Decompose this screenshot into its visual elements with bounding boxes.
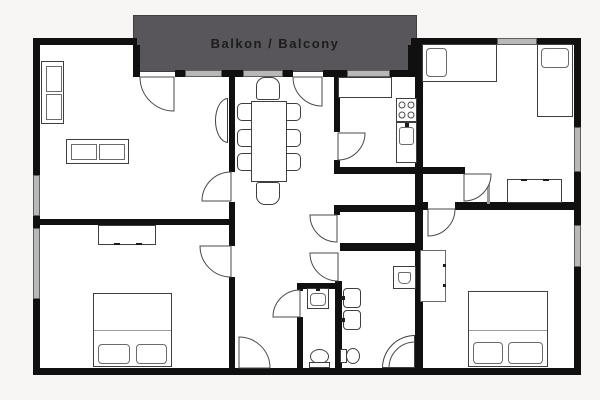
dining-chair: [285, 153, 301, 171]
handle: [114, 243, 120, 245]
kitchen-sink: [399, 127, 414, 145]
balcony-label: Balkon / Balcony: [211, 36, 340, 51]
wall-segment: [222, 70, 243, 77]
window: [33, 175, 40, 216]
window: [574, 225, 581, 267]
faucet-icon: [341, 318, 345, 322]
toilet: [346, 348, 360, 364]
dining-table: [251, 101, 287, 182]
dining-chair: [285, 129, 301, 147]
window: [497, 38, 537, 45]
glass-partition: [487, 174, 490, 204]
dining-chair: [256, 182, 280, 205]
wall-segment: [334, 167, 465, 174]
blanket-line: [469, 330, 547, 331]
wall-segment: [455, 202, 574, 210]
window: [185, 70, 222, 77]
basin: [310, 293, 326, 306]
window: [243, 70, 283, 77]
wall-segment: [340, 243, 415, 251]
wall-segment: [175, 70, 185, 77]
dresser: [98, 225, 156, 245]
blanket-line: [94, 330, 171, 331]
laundry-tub-icon: [398, 272, 411, 284]
wall-segment: [133, 45, 140, 77]
pillow: [541, 48, 569, 68]
seat-cushion: [46, 66, 62, 92]
balcony-deck: Balkon / Balcony: [133, 15, 417, 72]
wall-segment: [415, 45, 423, 372]
wall-segment: [33, 368, 581, 375]
seat-cushion: [46, 94, 62, 120]
pillow: [426, 48, 447, 77]
seat-cushion: [99, 144, 125, 160]
washbasin: [343, 288, 361, 308]
wall-segment: [229, 277, 235, 368]
pillow: [136, 344, 167, 364]
wall-segment: [574, 38, 581, 127]
wardrobe: [420, 250, 446, 302]
wall-segment: [334, 205, 340, 215]
wall-segment: [323, 70, 347, 77]
floor-plan: Balkon / Balcony: [0, 0, 600, 400]
wall-segment: [33, 299, 40, 368]
pillow: [508, 342, 543, 364]
seat-cushion: [71, 144, 97, 160]
kitchen-counter: [338, 77, 392, 98]
window: [574, 127, 581, 172]
pillow: [473, 342, 503, 364]
wall-segment: [297, 317, 303, 368]
wall-segment: [229, 77, 235, 172]
window: [347, 70, 390, 77]
wall-segment: [33, 216, 40, 228]
wall-segment: [33, 38, 137, 45]
toilet-tank: [309, 362, 330, 368]
stove: [396, 98, 417, 122]
wall-segment: [390, 70, 415, 77]
wall-segment: [283, 70, 293, 77]
dining-chair: [285, 103, 301, 121]
wall-segment: [574, 172, 581, 225]
handle: [443, 264, 446, 267]
window: [33, 228, 40, 299]
handle: [521, 179, 527, 181]
handle: [136, 243, 142, 245]
dresser: [507, 179, 562, 203]
wall-segment: [340, 205, 415, 212]
washbasin: [343, 310, 361, 330]
wall-segment: [33, 38, 40, 175]
handle: [543, 179, 549, 181]
pillow: [98, 344, 130, 364]
faucet-icon: [341, 296, 345, 300]
faucet-icon: [405, 123, 409, 127]
wall-segment: [574, 267, 581, 368]
dining-chair: [256, 77, 280, 100]
handle: [443, 284, 446, 287]
faucet-icon: [316, 288, 320, 291]
